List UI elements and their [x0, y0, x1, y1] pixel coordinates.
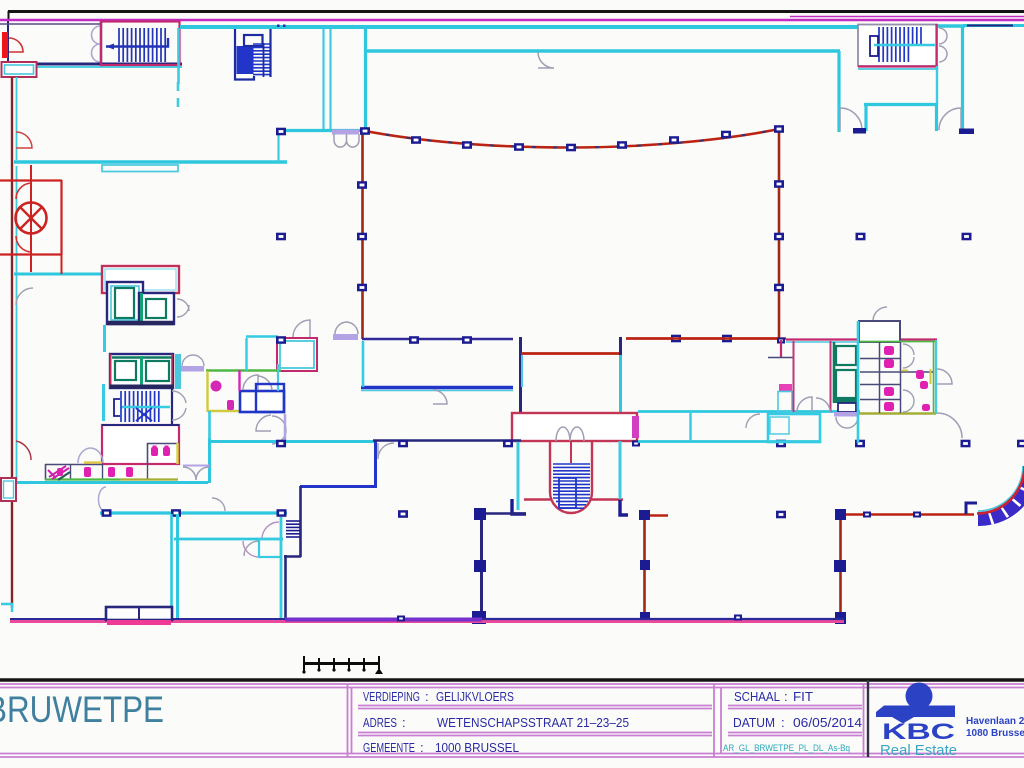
- svg-text::: :: [781, 715, 785, 730]
- svg-text:GEMEENTE: GEMEENTE: [363, 740, 415, 755]
- svg-text:06/05/2014: 06/05/2014: [793, 715, 862, 730]
- svg-text:FIT: FIT: [793, 689, 813, 704]
- svg-text:WETENSCHAPSSTRAAT 21–23–25: WETENSCHAPSSTRAAT 21–23–25: [437, 715, 629, 730]
- svg-text:GELIJKVLOERS: GELIJKVLOERS: [436, 689, 514, 704]
- svg-text:DATUM: DATUM: [733, 715, 775, 730]
- svg-text:KBC: KBC: [882, 719, 955, 744]
- svg-text::: :: [784, 689, 788, 704]
- svg-text::: :: [420, 740, 424, 755]
- svg-text:VERDIEPING: VERDIEPING: [363, 689, 420, 704]
- svg-text:AR_GL_BRWETPE_PL_DL_As-Bq: AR_GL_BRWETPE_PL_DL_As-Bq: [723, 743, 850, 754]
- svg-text::: :: [402, 715, 406, 730]
- svg-text:ADRES: ADRES: [363, 715, 397, 730]
- svg-text:Havenlaan 2: Havenlaan 2: [966, 716, 1024, 727]
- svg-text:1080 Brussel: 1080 Brussel: [966, 728, 1024, 739]
- svg-text:1000 BRUSSEL: 1000 BRUSSEL: [435, 740, 519, 755]
- svg-text:SCHAAL: SCHAAL: [734, 689, 780, 704]
- svg-text:BRUWETPE: BRUWETPE: [0, 689, 164, 730]
- svg-text:Real Estate: Real Estate: [880, 742, 957, 759]
- svg-text::: :: [425, 689, 429, 704]
